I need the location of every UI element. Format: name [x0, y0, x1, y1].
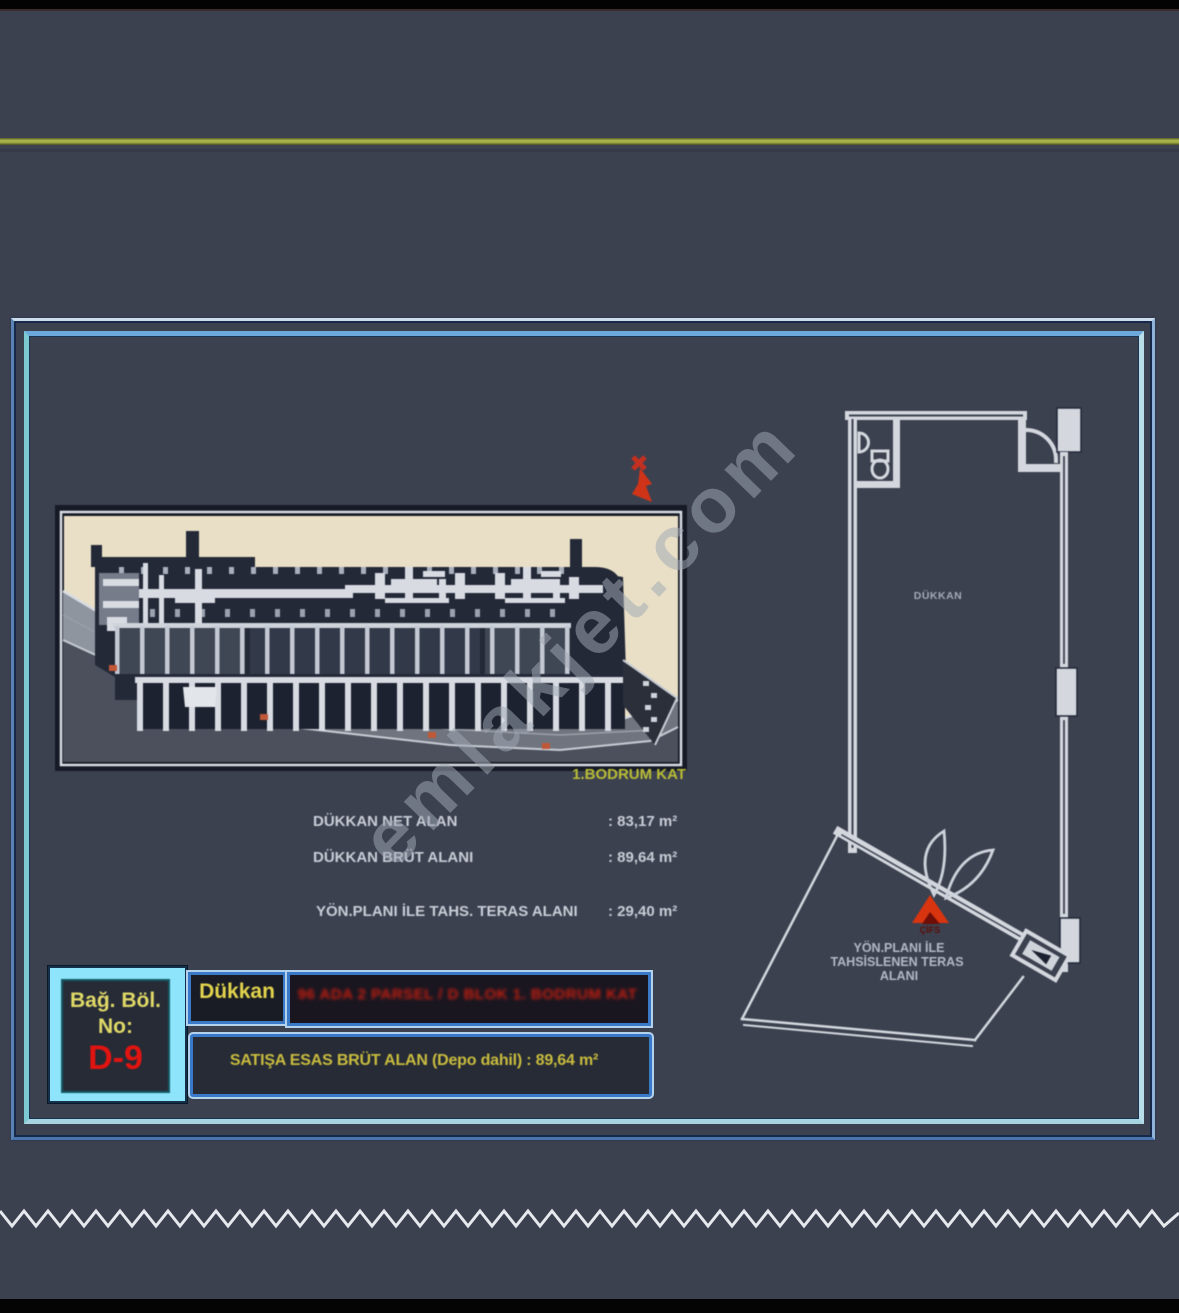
svg-text:ÇİFS: ÇİFS — [920, 925, 941, 935]
svg-text:TAHSİSLENEN TERAS: TAHSİSLENEN TERAS — [830, 954, 963, 969]
svg-text:ALANI: ALANI — [880, 969, 918, 983]
svg-text:YÖN.PLANI İLE: YÖN.PLANI İLE — [854, 940, 945, 955]
svg-text:DÜKKAN: DÜKKAN — [914, 589, 963, 602]
